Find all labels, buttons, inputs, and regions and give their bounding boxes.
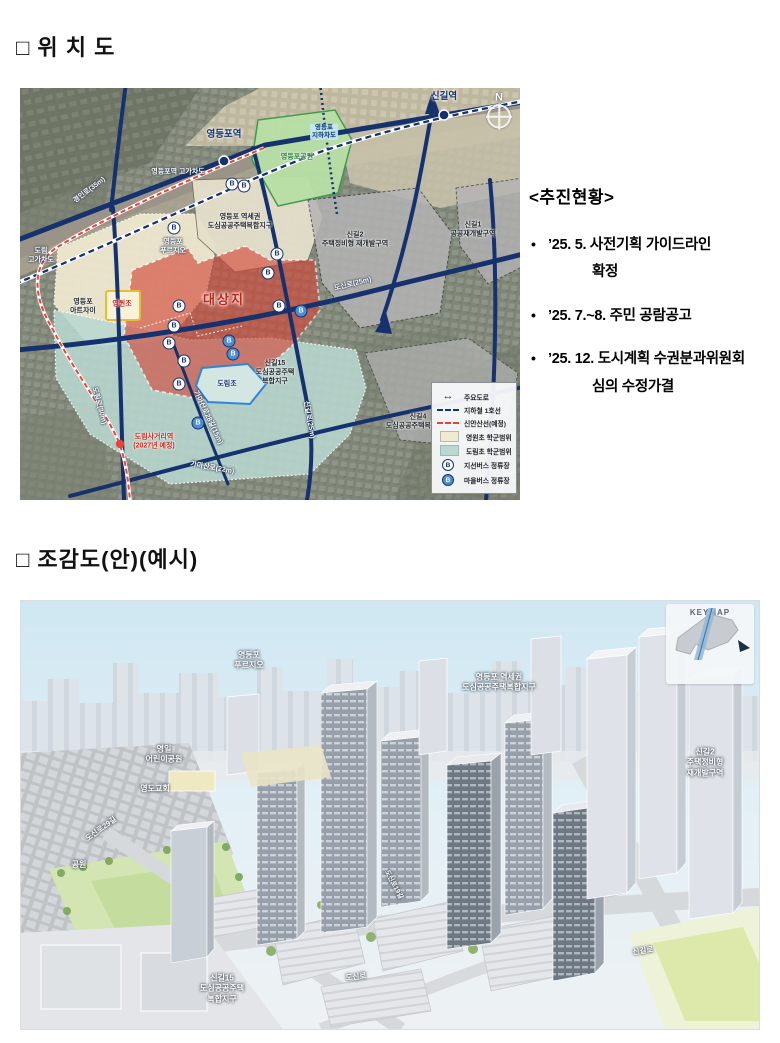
church-label-yeongdo: 영도교회 (140, 784, 169, 794)
keymap-graphic (666, 604, 754, 666)
keymap-cursor-icon (738, 640, 750, 652)
branch-bus-icon (442, 459, 454, 471)
legend-row: 주요도로 (437, 391, 512, 402)
location-map-figure: 영등포역 신길역 영등포역 고가차도 경인로(35m) 도림 고가차도 영등포 … (20, 88, 520, 500)
zone-label-singil1: 신길1 공공재개발구역 (450, 221, 495, 239)
sinansan-dash-icon (437, 422, 459, 424)
section-title-location-map: □ 위 치 도 (16, 30, 115, 62)
road-label-singil-3d: 신길로 (632, 945, 654, 958)
branch-bus-icon (173, 378, 186, 391)
station-label-singil: 신길역 (431, 91, 457, 103)
north-compass-icon: N (487, 92, 511, 129)
legend-label: 마을버스 정류장 (464, 475, 510, 485)
branch-bus-icon (163, 337, 176, 350)
zone-label-singil2: 신길2 주택정비형 재개발구역 (322, 231, 388, 249)
status-item-cont: 심의 수정가결 (592, 376, 774, 398)
road-label-dorim: 도림로(30m) (89, 387, 107, 426)
legend-row: 영원초 학군범위 (437, 431, 512, 442)
legend-row: 지하철 1호선 (437, 405, 512, 415)
zone-label-target-site: 대상지 (203, 292, 245, 308)
legend-row: 신안산선(예정) (437, 418, 512, 428)
branch-bus-icon (173, 300, 186, 313)
status-item-cont: 확정 (592, 261, 774, 283)
branch-bus-icon (262, 267, 275, 280)
village-bus-icon (227, 348, 240, 361)
apt-label-prugio: 영등포 푸르지오 (160, 238, 186, 256)
road-label-overpass: 영등포역 고가차도 (151, 169, 204, 178)
legend-label: 영원초 학군범위 (466, 432, 512, 442)
legend-label: 도림초 학군범위 (466, 446, 512, 456)
school-label-dorim: 도림초 (217, 381, 236, 390)
teal-swatch-icon (440, 445, 459, 456)
branch-bus-icon (178, 355, 191, 368)
zone-label-singil2-3d: 신길2 주택정비형 재개발구역 (687, 747, 724, 778)
progress-status-heading: <추진현황> (529, 183, 774, 208)
section-title-birdseye-view: □ 조감도(안)(예시) (16, 542, 198, 574)
branch-bus-icon (271, 248, 284, 261)
subway-dash-icon (437, 409, 459, 411)
station-label-yeongdeungpo: 영등포역 (207, 129, 242, 141)
road-label-singil: 신길로(25m) (300, 401, 315, 440)
legend-row: 도림초 학군범위 (437, 445, 512, 456)
village-bus-icon (442, 474, 454, 486)
road-label-gamasan: 가마산로(22m) (189, 461, 234, 477)
legend-row: 마을버스 정류장 (437, 474, 512, 486)
road-label-dosin: 도신로(25m) (334, 276, 373, 294)
zone-label-singil15: 신길15 도심공공주택 복합지구 (256, 360, 295, 386)
progress-status-block: <추진현황> ’25. 5. 사전기획 가이드라인 확정 ’25. 7.~8. … (529, 183, 774, 419)
village-bus-icon (192, 417, 205, 430)
road-label-dosin19: 도신로19길 (382, 869, 404, 900)
legend-row: 지선버스 정류장 (437, 459, 512, 471)
legend-label: 주요도로 (464, 392, 489, 402)
legend-label: 지선버스 정류장 (464, 460, 510, 470)
branch-bus-icon (226, 178, 239, 191)
branch-bus-icon (168, 320, 181, 333)
apt-label-artzai: 영등포 아트자이 (70, 298, 96, 316)
road-label-underpass: 영등포 지하차도 (310, 124, 338, 140)
zone-label-station-area: 영등포 역세권 도심공공주택복합지구 (208, 213, 272, 231)
zone-label-station-area-3d: 영등포 역세권 도심공공주택복합지구 (462, 673, 536, 694)
legend-label: 신안산선(예정) (464, 418, 506, 428)
village-bus-icon (223, 335, 236, 348)
park-label-yeongil: 영일 어린이공원 (146, 745, 183, 766)
status-item: ’25. 5. 사전기획 가이드라인 확정 (529, 234, 774, 284)
zone-label-singil15-3d: 신길15 도심공공주택 복합지구 (200, 973, 244, 1004)
main-road-arrow-icon (437, 391, 459, 402)
birdseye-render-figure: 영등포 푸르지오 영등포 역세권 도심공공주택복합지구 신길2 주택정비형 재개… (20, 600, 760, 1030)
apt-label-prugio-3d: 영등포 푸르지오 (234, 651, 263, 672)
status-item-text: ’25. 7.~8. 주민 공람공고 (548, 308, 692, 324)
status-item: ’25. 7.~8. 주민 공람공고 (529, 305, 774, 327)
status-item: ’25. 12. 도시계획 수권분과위원회 심의 수정가결 (529, 348, 774, 398)
legend-label: 지하철 1호선 (464, 405, 501, 415)
station-label-dorim-future: 도림사거리역 (2027년 예정) (133, 433, 175, 451)
map-legend: 주요도로 지하철 1호선 신안산선(예정) 영원초 학군범위 도림초 학군범위 … (431, 382, 517, 494)
cream-swatch-icon (440, 431, 459, 442)
branch-bus-icon (273, 300, 286, 313)
zone-label-yeongdeungpo-park: 영등포공원 (281, 154, 313, 163)
road-label-gyeongin: 경인로(35m) (72, 176, 108, 206)
compass-n-label: N (487, 92, 511, 104)
road-label-dosin29: 도신로29길 (84, 814, 119, 843)
village-bus-icon (295, 305, 308, 318)
keymap-widget: KEYMAP (666, 604, 754, 684)
road-label-dorim-overpass: 도림 고가차도 (28, 247, 54, 265)
branch-bus-icon (168, 222, 181, 235)
status-item-text: ’25. 5. 사전기획 가이드라인 (548, 237, 711, 253)
road-label-dosin-3d: 도신로 (345, 971, 367, 983)
render-labels-layer: 영등포 푸르지오 영등포 역세권 도심공공주택복합지구 신길2 주택정비형 재개… (21, 601, 760, 1030)
branch-bus-icon (238, 180, 251, 193)
school-label-yeongwon: 영원초 (112, 301, 131, 310)
status-item-text: ’25. 12. 도시계획 수권분과위원회 (548, 351, 745, 367)
park-label-gongwon: 공원 (72, 860, 87, 870)
